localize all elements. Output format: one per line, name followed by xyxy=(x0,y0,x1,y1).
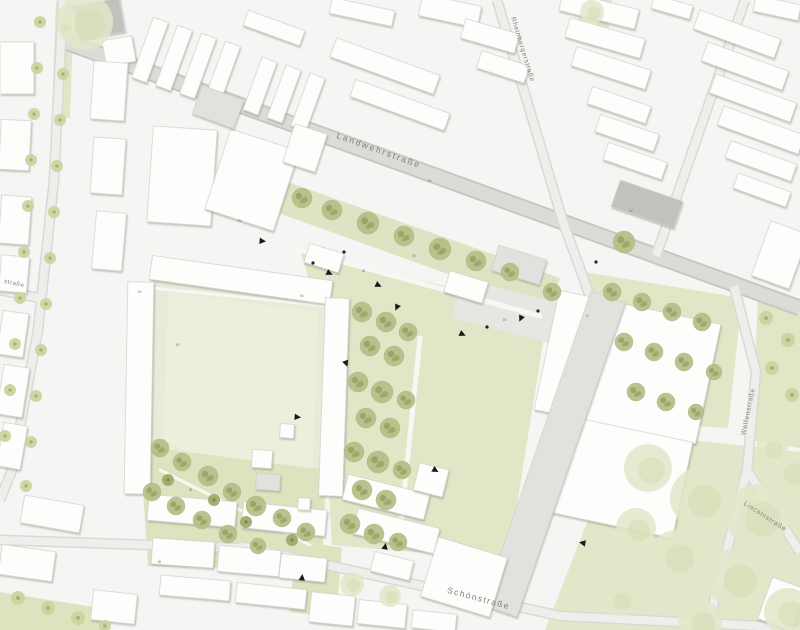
floor-label: IV xyxy=(412,253,416,258)
floor-label: IV xyxy=(238,218,242,223)
building xyxy=(159,575,230,601)
tree xyxy=(340,572,364,596)
marker-dot xyxy=(342,250,345,253)
tree xyxy=(250,538,266,554)
building xyxy=(309,592,356,626)
building xyxy=(255,473,280,491)
tree xyxy=(40,298,52,310)
building xyxy=(603,142,667,179)
tree xyxy=(193,511,211,529)
building xyxy=(0,422,28,469)
tree xyxy=(352,302,372,322)
building xyxy=(251,449,272,468)
tree xyxy=(627,383,645,401)
building xyxy=(0,310,29,357)
building xyxy=(147,126,218,226)
tree xyxy=(198,466,218,486)
floor-label: IV xyxy=(176,342,180,347)
tree xyxy=(48,206,60,218)
tree xyxy=(173,453,191,471)
tree xyxy=(624,444,672,492)
tree xyxy=(706,364,722,380)
building xyxy=(651,0,693,19)
tree xyxy=(352,480,372,500)
building xyxy=(192,85,244,128)
building xyxy=(330,38,440,94)
tree xyxy=(360,336,380,356)
building xyxy=(280,424,295,439)
tree xyxy=(580,0,604,24)
tree xyxy=(4,384,16,396)
tree xyxy=(633,293,651,311)
tree xyxy=(397,391,415,409)
tree xyxy=(292,188,312,208)
tree xyxy=(25,154,37,166)
building xyxy=(124,282,154,494)
tree xyxy=(429,238,451,260)
building xyxy=(20,495,84,533)
tree xyxy=(246,496,266,516)
tree xyxy=(756,432,788,464)
marker-dot xyxy=(311,261,314,264)
building xyxy=(92,211,127,271)
tree xyxy=(394,226,414,246)
tree xyxy=(384,346,404,366)
building xyxy=(329,0,395,26)
tree xyxy=(389,533,407,551)
building xyxy=(205,129,299,231)
tree xyxy=(376,490,396,510)
tree xyxy=(297,523,315,541)
tree xyxy=(688,404,704,420)
tree xyxy=(765,361,779,375)
floor-label: IV xyxy=(503,317,507,322)
tree xyxy=(223,483,241,501)
floor-label: IV xyxy=(428,178,432,183)
building xyxy=(298,498,311,511)
tree xyxy=(650,530,702,582)
floor-label: V xyxy=(586,313,589,318)
tree xyxy=(286,534,298,546)
floor-label: III xyxy=(362,268,365,273)
tree xyxy=(466,251,486,271)
building xyxy=(611,180,683,228)
tree xyxy=(706,548,766,608)
tree xyxy=(344,442,364,462)
marker-dot xyxy=(536,309,539,312)
floor-label: IV xyxy=(138,289,142,294)
building xyxy=(753,0,800,21)
building xyxy=(587,86,651,123)
tree xyxy=(615,333,633,351)
tree xyxy=(34,16,46,28)
tree xyxy=(219,525,237,543)
tree xyxy=(543,283,561,301)
tree xyxy=(143,483,161,501)
entrance-arrow-icon xyxy=(259,238,266,245)
tree xyxy=(670,468,730,528)
building xyxy=(90,137,126,195)
tree xyxy=(18,246,30,258)
tree xyxy=(25,436,37,448)
tree xyxy=(759,311,773,325)
tree xyxy=(604,584,636,616)
tree xyxy=(20,480,32,492)
tree xyxy=(399,323,417,341)
tree xyxy=(28,108,40,120)
tree xyxy=(371,381,393,403)
tree xyxy=(11,591,25,605)
tree xyxy=(151,439,169,457)
tree xyxy=(616,508,656,548)
floor-label: IV xyxy=(629,208,633,213)
tree xyxy=(14,292,26,304)
marker-dot xyxy=(594,260,597,263)
floor-label: III xyxy=(158,559,161,564)
building xyxy=(90,61,128,121)
tree xyxy=(22,200,34,212)
building xyxy=(0,544,56,581)
tree xyxy=(379,585,401,607)
building xyxy=(751,221,800,289)
tree xyxy=(57,68,69,80)
tree xyxy=(273,509,291,527)
tree xyxy=(322,200,342,220)
tree xyxy=(675,353,693,371)
tree xyxy=(44,252,56,264)
building xyxy=(0,42,34,94)
tree xyxy=(663,303,681,321)
tree xyxy=(645,343,663,361)
tree xyxy=(162,474,174,486)
site-plan-map: IVIVIIIIVIVIIIIVIVVIIIIVIV Landwehrstraß… xyxy=(0,0,800,630)
tree xyxy=(613,231,635,253)
floor-label: IV xyxy=(300,293,304,298)
tree xyxy=(364,524,384,544)
building xyxy=(243,10,305,46)
tree xyxy=(393,461,411,479)
building xyxy=(411,610,457,630)
tree xyxy=(9,338,21,350)
tree xyxy=(785,388,799,402)
tree xyxy=(376,312,396,332)
tree xyxy=(51,160,63,172)
tree xyxy=(781,333,795,347)
tree xyxy=(240,516,252,528)
tree xyxy=(208,494,220,506)
building xyxy=(91,590,138,624)
building xyxy=(217,545,281,576)
tree xyxy=(31,62,43,74)
tree xyxy=(35,344,47,356)
tree xyxy=(357,212,379,234)
tree xyxy=(54,114,66,126)
marker-dot xyxy=(485,325,488,328)
tree xyxy=(41,601,55,615)
tree xyxy=(71,611,85,625)
tree xyxy=(501,263,519,281)
tree xyxy=(380,418,400,438)
tree xyxy=(340,514,360,534)
tree xyxy=(348,372,368,392)
tree xyxy=(603,283,621,301)
floor-label: III xyxy=(189,487,192,492)
tree xyxy=(30,390,42,402)
building xyxy=(357,600,407,629)
building xyxy=(460,19,519,54)
tree xyxy=(367,451,389,473)
tree xyxy=(356,408,376,428)
tree xyxy=(167,497,185,515)
tree xyxy=(693,313,711,331)
tree xyxy=(657,393,675,411)
building xyxy=(595,114,659,151)
map-canvas: IVIVIIIIVIVIIIIVIVVIIIIVIV Landwehrstraß… xyxy=(0,0,800,630)
building xyxy=(0,255,30,293)
